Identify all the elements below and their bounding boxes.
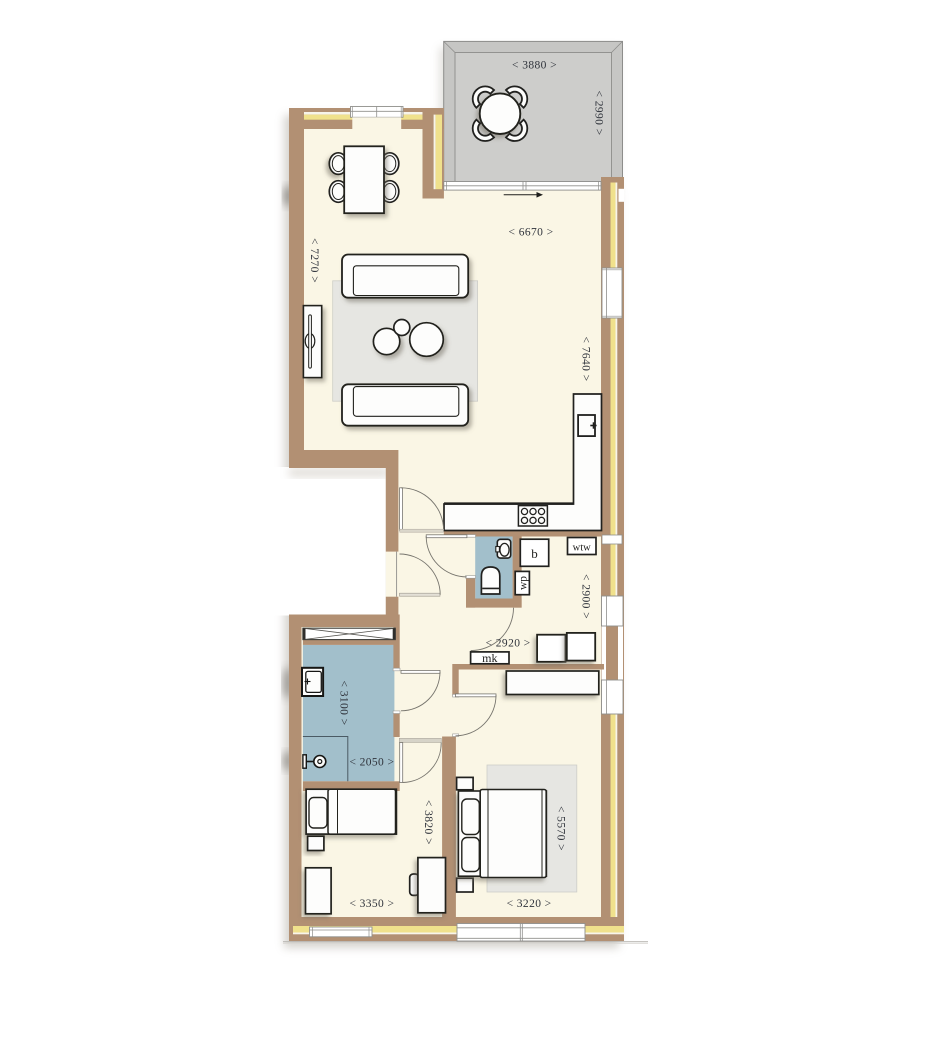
svg-text:< 7640 >: < 7640 > (580, 337, 592, 382)
svg-text:b: b (531, 546, 538, 561)
svg-text:< 3100 >: < 3100 > (337, 681, 349, 726)
svg-text:< 2050 >: < 2050 > (349, 757, 394, 769)
svg-text:< 3820 >: < 3820 > (422, 800, 434, 845)
svg-text:< 3220 >: < 3220 > (507, 898, 552, 910)
svg-text:< 3350 >: < 3350 > (349, 898, 394, 910)
svg-text:< 2920 >: < 2920 > (486, 638, 531, 650)
svg-text:< 7270 >: < 7270 > (308, 238, 320, 283)
svg-text:< 3880 >: < 3880 > (512, 60, 557, 72)
svg-text:< 2900 >: < 2900 > (579, 574, 591, 619)
svg-text:wtw: wtw (573, 542, 592, 553)
svg-text:mk: mk (482, 651, 497, 665)
svg-text:< 6670 >: < 6670 > (509, 227, 554, 239)
svg-text:wp: wp (517, 576, 529, 590)
svg-text:< 2990 >: < 2990 > (593, 91, 605, 136)
svg-text:< 5570 >: < 5570 > (555, 806, 567, 851)
